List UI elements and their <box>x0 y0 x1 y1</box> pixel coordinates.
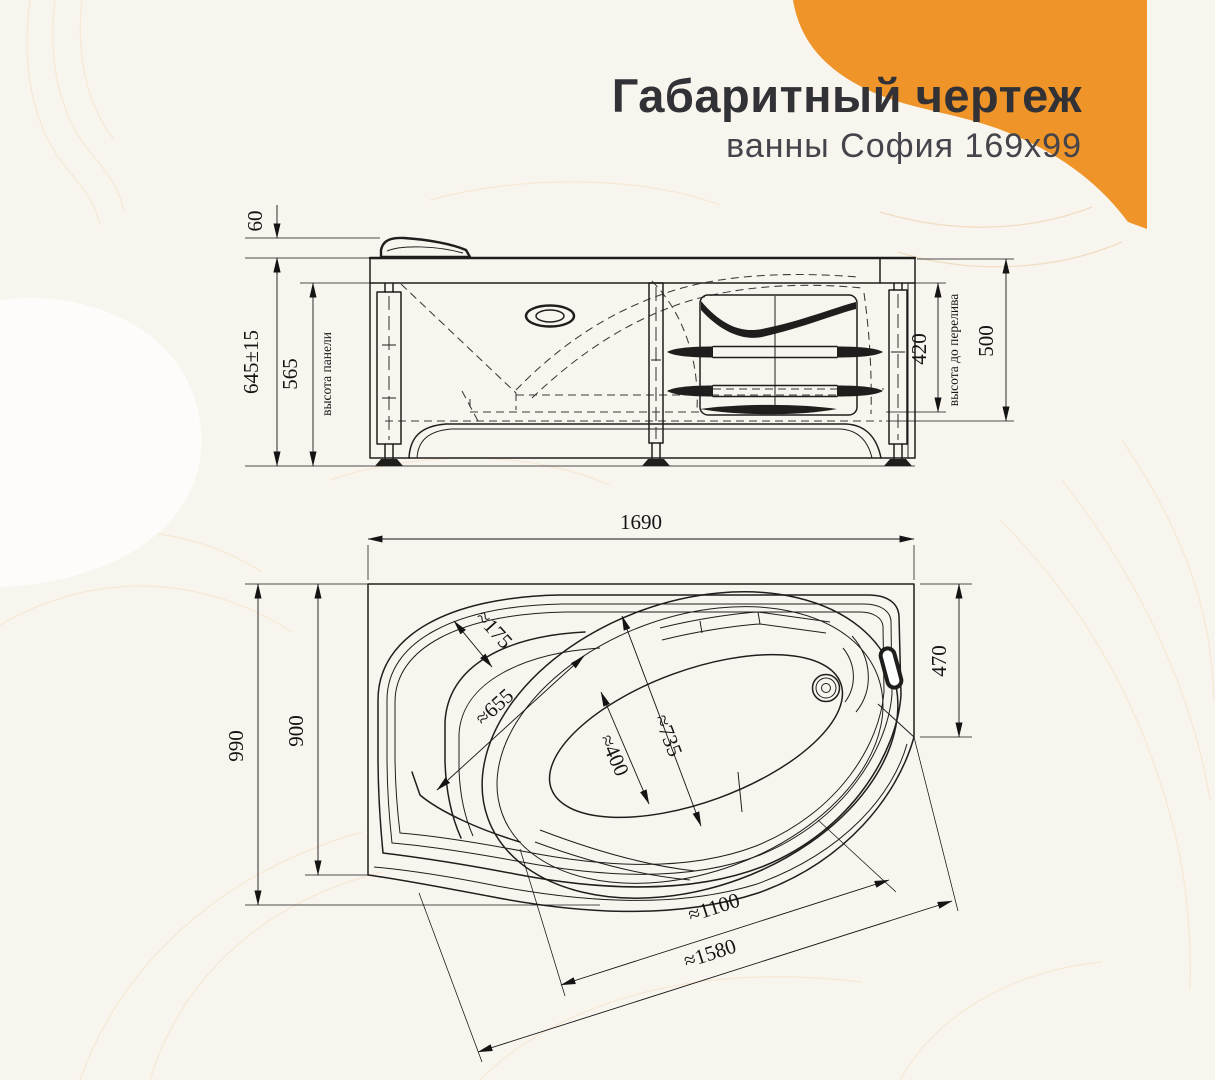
dim-overflow-height-label: высота до перелива <box>946 294 961 407</box>
header: Габаритный чертеж ванны София 169x99 <box>612 70 1082 166</box>
dim-length: 1690 <box>620 510 662 534</box>
dim-panel-height: 565 <box>278 358 302 390</box>
dim-overflow-height: 420 <box>907 333 931 365</box>
dim-width-total: 990 <box>224 730 248 762</box>
dim-rim-height: 500 <box>974 325 998 357</box>
drawing-page: 60 645±15 565 высота панели 420 высота д… <box>0 0 1215 1080</box>
page-subtitle: ванны София 169x99 <box>612 127 1082 166</box>
page-title: Габаритный чертеж <box>612 70 1082 122</box>
dim-top-offset: 60 <box>243 211 267 232</box>
dim-panel-height-label: высота панели <box>319 332 334 416</box>
dim-total-height: 645±15 <box>239 330 263 394</box>
dim-width-inner: 900 <box>284 715 308 747</box>
dim-end-width: 470 <box>927 645 951 677</box>
